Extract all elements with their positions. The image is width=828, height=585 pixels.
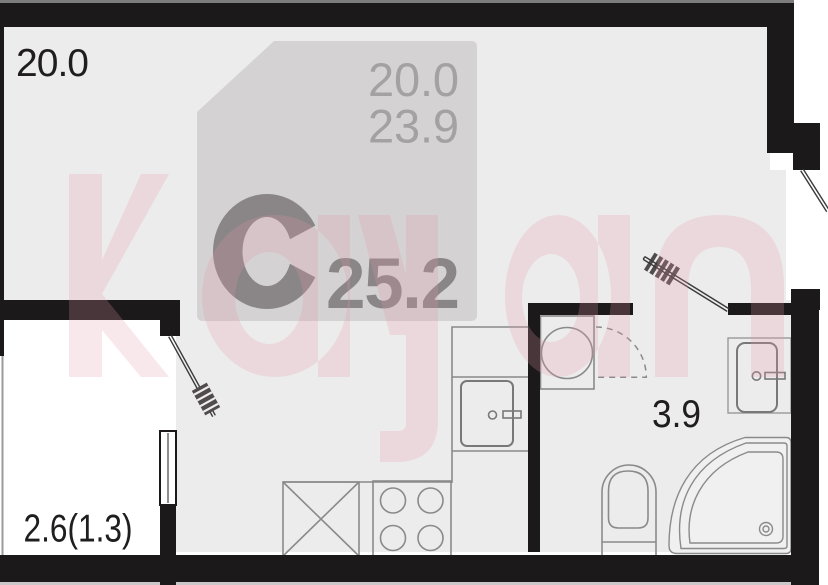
svg-text:23.9: 23.9 xyxy=(368,100,459,153)
svg-text:20.0: 20.0 xyxy=(16,42,89,85)
svg-text:2.6(1.3): 2.6(1.3) xyxy=(24,508,133,551)
svg-text:20.0: 20.0 xyxy=(368,53,459,106)
svg-text:3.9: 3.9 xyxy=(652,393,701,436)
